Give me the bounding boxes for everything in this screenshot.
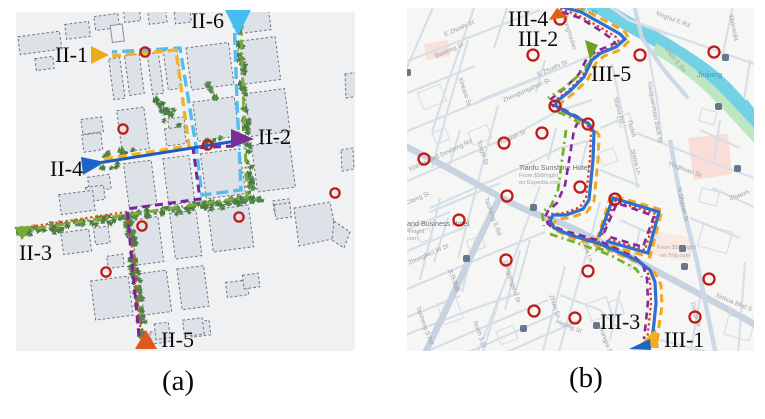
svg-text:on Trip.com: on Trip.com	[660, 253, 690, 259]
svg-text:II-1: II-1	[55, 42, 88, 67]
svg-text:(b): (b)	[569, 362, 603, 394]
svg-text:II-2: II-2	[258, 124, 291, 149]
svg-text:4/night: 4/night	[407, 229, 425, 235]
svg-text:II-4: II-4	[50, 156, 83, 181]
svg-text:on Expedia.com: on Expedia.com	[519, 180, 561, 186]
svg-text:Tianfu Sunshine Hotel: Tianfu Sunshine Hotel	[519, 163, 590, 172]
svg-text:com: com	[407, 236, 418, 242]
svg-text:III-5: III-5	[591, 61, 631, 86]
svg-text:From $58/night: From $58/night	[519, 173, 558, 179]
svg-text:III-2: III-2	[518, 26, 558, 51]
svg-text:II-3: II-3	[19, 240, 52, 265]
svg-text:III-1: III-1	[664, 327, 704, 352]
svg-text:and Business Hotel: and Business Hotel	[407, 219, 469, 228]
svg-text:From $21/night: From $21/night	[657, 245, 696, 251]
svg-text:Jinjiang: Jinjiang	[697, 70, 722, 79]
svg-text:III-3: III-3	[600, 309, 640, 334]
svg-text:II-6: II-6	[191, 8, 224, 33]
svg-text:II-5: II-5	[161, 327, 194, 352]
svg-text:(a): (a)	[162, 365, 194, 397]
